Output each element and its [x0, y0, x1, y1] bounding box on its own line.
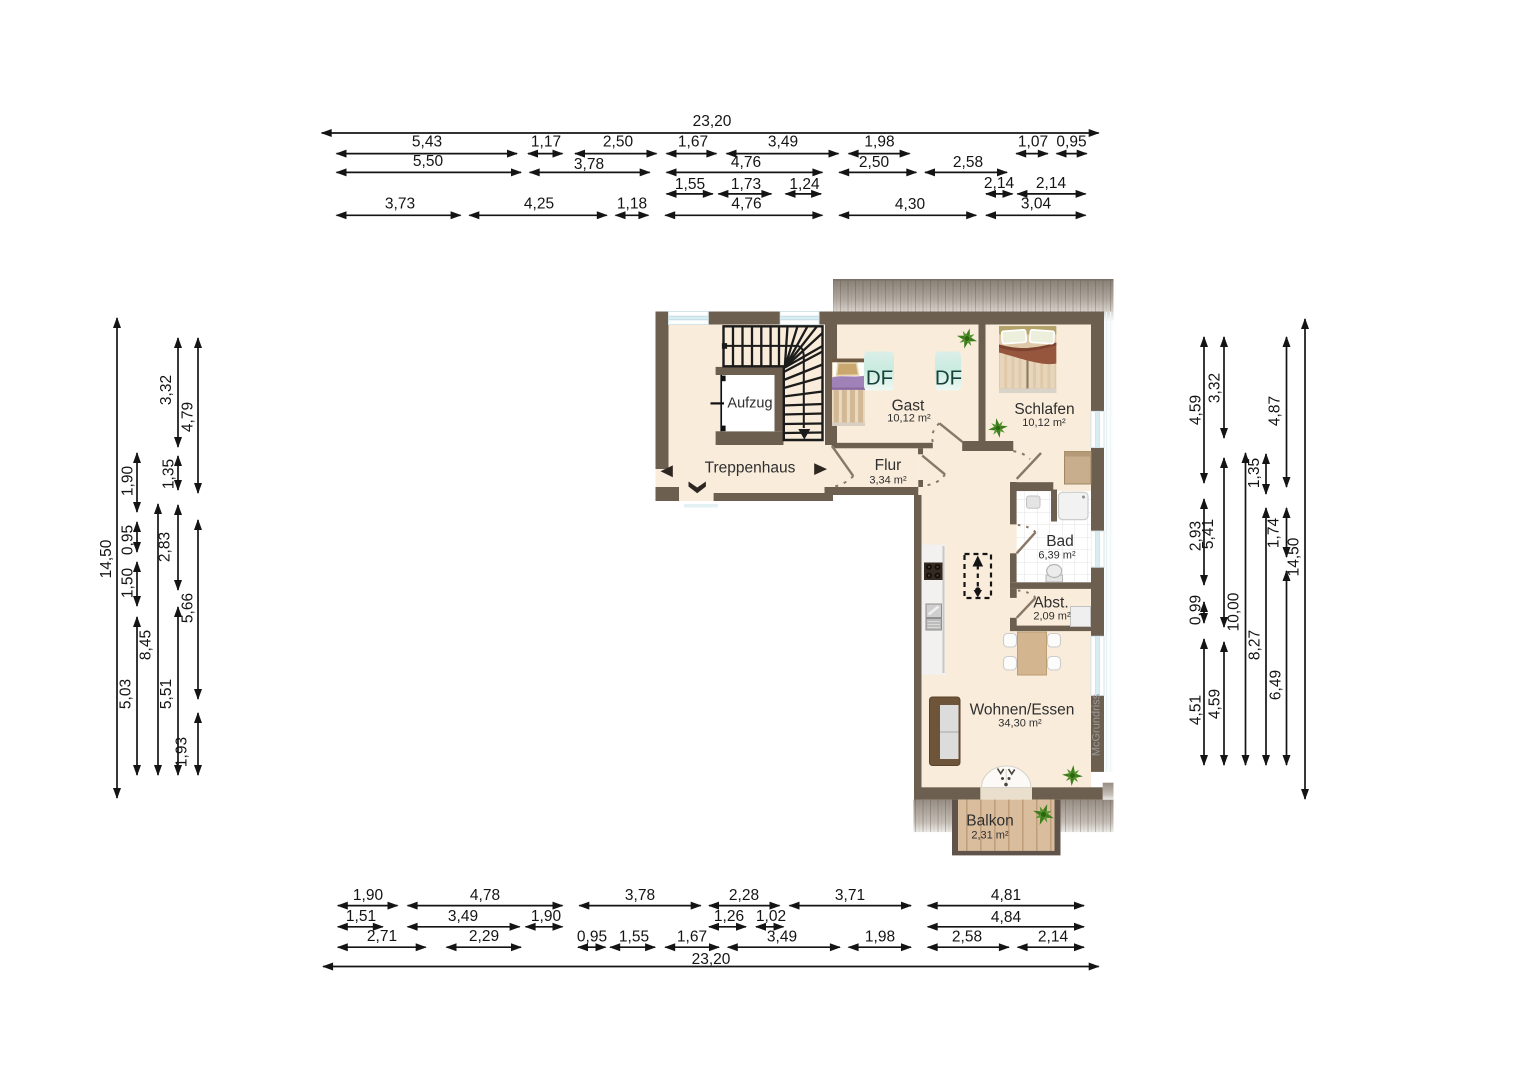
- svg-text:1,90: 1,90: [353, 887, 384, 904]
- svg-text:5,66: 5,66: [180, 593, 197, 623]
- svg-text:1,51: 1,51: [346, 908, 376, 925]
- svg-text:1,55: 1,55: [675, 176, 705, 193]
- svg-text:3,49: 3,49: [768, 134, 798, 151]
- svg-text:2,14: 2,14: [984, 175, 1015, 192]
- svg-text:4,79: 4,79: [180, 402, 197, 432]
- svg-text:4,51: 4,51: [1188, 695, 1205, 725]
- svg-text:1,18: 1,18: [617, 196, 647, 213]
- svg-text:8,45: 8,45: [138, 630, 155, 660]
- svg-text:34,30 m²: 34,30 m²: [998, 718, 1042, 730]
- svg-text:Schlafen: Schlafen: [1014, 401, 1074, 418]
- svg-text:2,58: 2,58: [952, 929, 982, 946]
- svg-text:Aufzug: Aufzug: [727, 396, 772, 412]
- svg-text:Bad: Bad: [1046, 533, 1074, 550]
- svg-text:4,76: 4,76: [731, 196, 761, 213]
- svg-text:5,03: 5,03: [118, 679, 135, 709]
- svg-text:McGrundriss: McGrundriss: [1091, 693, 1103, 756]
- svg-text:1,02: 1,02: [756, 908, 786, 925]
- svg-text:3,34 m²: 3,34 m²: [869, 475, 907, 487]
- svg-text:1,90: 1,90: [531, 908, 562, 925]
- svg-text:3,78: 3,78: [574, 156, 604, 173]
- svg-text:1,50: 1,50: [120, 568, 137, 599]
- svg-text:10,12 m²: 10,12 m²: [1022, 417, 1066, 429]
- svg-text:5,51: 5,51: [158, 679, 175, 709]
- svg-text:DF: DF: [935, 367, 962, 390]
- svg-text:2,09 m²: 2,09 m²: [1033, 611, 1071, 623]
- svg-text:Wohnen/Essen: Wohnen/Essen: [970, 702, 1075, 719]
- svg-text:5,50: 5,50: [413, 153, 444, 170]
- svg-text:1,55: 1,55: [619, 929, 649, 946]
- svg-text:3,49: 3,49: [767, 929, 797, 946]
- svg-text:1,98: 1,98: [864, 134, 894, 151]
- svg-text:3,71: 3,71: [835, 887, 865, 904]
- svg-text:0,95: 0,95: [577, 929, 607, 946]
- svg-text:5,43: 5,43: [412, 134, 442, 151]
- svg-text:Abst.: Abst.: [1033, 595, 1068, 612]
- svg-text:4,81: 4,81: [991, 887, 1021, 904]
- svg-text:Treppenhaus: Treppenhaus: [705, 460, 796, 477]
- svg-text:14,50: 14,50: [1286, 537, 1303, 576]
- svg-text:8,27: 8,27: [1247, 630, 1264, 660]
- svg-text:3,32: 3,32: [1207, 373, 1224, 403]
- svg-text:0,99: 0,99: [1188, 595, 1205, 625]
- svg-text:1,17: 1,17: [531, 134, 561, 151]
- svg-text:1,67: 1,67: [678, 134, 708, 151]
- svg-text:6,39 m²: 6,39 m²: [1038, 550, 1076, 562]
- svg-text:2,29: 2,29: [469, 928, 499, 945]
- svg-text:6,49: 6,49: [1268, 670, 1285, 700]
- svg-text:3,78: 3,78: [625, 887, 655, 904]
- svg-text:1,07: 1,07: [1018, 134, 1048, 151]
- svg-text:Balkon: Balkon: [966, 813, 1013, 830]
- svg-text:2,31 m²: 2,31 m²: [971, 830, 1009, 842]
- svg-text:1,90: 1,90: [120, 466, 137, 497]
- svg-text:1,73: 1,73: [731, 176, 761, 193]
- svg-text:2,28: 2,28: [729, 887, 759, 904]
- svg-text:4,25: 4,25: [524, 196, 554, 213]
- svg-text:2,14: 2,14: [1038, 929, 1069, 946]
- svg-text:1,24: 1,24: [789, 176, 820, 193]
- svg-text:4,59: 4,59: [1188, 395, 1205, 425]
- svg-text:0,95: 0,95: [1056, 134, 1086, 151]
- svg-text:1,35: 1,35: [161, 459, 178, 489]
- svg-text:1,98: 1,98: [865, 929, 895, 946]
- svg-text:4,59: 4,59: [1207, 689, 1224, 719]
- svg-text:2,58: 2,58: [953, 154, 983, 171]
- svg-text:3,73: 3,73: [385, 196, 415, 213]
- svg-text:4,30: 4,30: [895, 196, 926, 213]
- svg-text:14,50: 14,50: [98, 539, 115, 578]
- svg-text:4,84: 4,84: [991, 909, 1022, 926]
- svg-text:DF: DF: [866, 367, 893, 390]
- svg-text:4,76: 4,76: [731, 154, 761, 171]
- svg-text:2,14: 2,14: [1036, 175, 1067, 192]
- svg-text:3,49: 3,49: [448, 908, 478, 925]
- svg-text:0,95: 0,95: [120, 525, 137, 555]
- svg-text:1,26: 1,26: [714, 908, 744, 925]
- svg-text:10,00: 10,00: [1226, 592, 1243, 631]
- svg-text:1,74: 1,74: [1266, 518, 1283, 549]
- svg-text:1,93: 1,93: [174, 737, 191, 767]
- svg-text:2,50: 2,50: [859, 154, 890, 171]
- svg-text:23,20: 23,20: [692, 951, 731, 968]
- svg-text:23,20: 23,20: [693, 113, 732, 130]
- svg-text:2,50: 2,50: [603, 134, 634, 151]
- svg-text:1,67: 1,67: [677, 929, 707, 946]
- svg-text:1,35: 1,35: [1246, 458, 1263, 488]
- svg-text:4,78: 4,78: [470, 887, 500, 904]
- svg-text:4,87: 4,87: [1267, 396, 1284, 426]
- svg-text:2,71: 2,71: [367, 928, 397, 945]
- svg-text:Flur: Flur: [875, 457, 902, 474]
- svg-text:2,83: 2,83: [157, 532, 174, 562]
- svg-text:3,32: 3,32: [158, 375, 175, 405]
- svg-text:5,41: 5,41: [1200, 519, 1217, 549]
- svg-text:10,12 m²: 10,12 m²: [887, 413, 931, 425]
- svg-text:3,04: 3,04: [1021, 196, 1052, 213]
